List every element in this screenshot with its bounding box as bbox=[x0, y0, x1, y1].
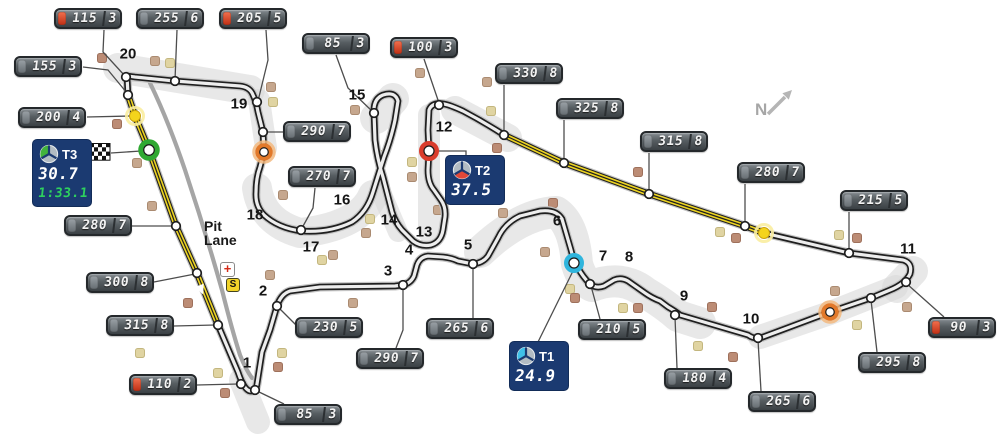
turn-number-20: 20 bbox=[120, 46, 137, 63]
gear-value: 3 bbox=[976, 320, 995, 335]
trackside-square bbox=[487, 107, 496, 116]
speed-value: 300 bbox=[97, 274, 136, 291]
trackside-square bbox=[694, 342, 703, 351]
track-node bbox=[845, 249, 854, 258]
trackside-square bbox=[835, 231, 844, 240]
gear-value: 8 bbox=[688, 134, 707, 149]
gear-value: 8 bbox=[604, 101, 623, 116]
gear-value: 7 bbox=[336, 169, 355, 184]
turn-number-10: 10 bbox=[743, 311, 760, 328]
turn-number-6: 6 bbox=[553, 213, 561, 230]
gear-value: 8 bbox=[906, 355, 925, 370]
turn-number-7: 7 bbox=[599, 248, 607, 265]
speed-gear-sign: 853 bbox=[274, 404, 342, 425]
pit-lane-label: Pit Lane bbox=[204, 219, 237, 247]
trackside-square bbox=[483, 78, 492, 87]
track-node bbox=[122, 73, 131, 82]
sector-label: T1 bbox=[539, 349, 554, 364]
track-node bbox=[193, 269, 202, 278]
track-node bbox=[671, 311, 680, 320]
speed-gear-sign: 903 bbox=[928, 317, 996, 338]
turn-number-5: 5 bbox=[464, 237, 472, 254]
speed-value: 290 bbox=[294, 123, 333, 140]
gear-value: 7 bbox=[331, 124, 350, 139]
turn-number-19: 19 bbox=[231, 96, 248, 113]
connector-line bbox=[396, 287, 403, 348]
trackside-square bbox=[184, 299, 193, 308]
turn-number-12: 12 bbox=[436, 119, 453, 136]
sector-label: T3 bbox=[62, 147, 77, 162]
speed-gear-sign: 3258 bbox=[556, 98, 624, 119]
speed-value: 325 bbox=[567, 100, 606, 117]
drs-activation-marker-2 bbox=[759, 228, 770, 239]
track-node bbox=[297, 226, 306, 235]
gear-value: 3 bbox=[322, 407, 341, 422]
gear-value: 7 bbox=[112, 218, 131, 233]
speed-value: 90 bbox=[939, 319, 978, 336]
speed-value: 180 bbox=[675, 370, 714, 387]
track-node bbox=[754, 334, 763, 343]
speed-gear-sign: 3158 bbox=[106, 315, 174, 336]
trackside-square bbox=[408, 158, 417, 167]
turn-number-2: 2 bbox=[259, 283, 267, 300]
trackside-square bbox=[716, 228, 725, 237]
track-node bbox=[251, 386, 260, 395]
speed-gear-sign: 2105 bbox=[578, 319, 646, 340]
speed-value: 230 bbox=[306, 319, 345, 336]
turn-number-8: 8 bbox=[625, 249, 633, 266]
compass-north-label: N bbox=[755, 100, 767, 120]
pit-entry-icon: S bbox=[226, 278, 240, 292]
trackside-square bbox=[113, 120, 122, 129]
sector-pie-icon bbox=[515, 345, 537, 367]
gear-value: 7 bbox=[404, 351, 423, 366]
speed-gear-sign: 2656 bbox=[748, 391, 816, 412]
gear-value: 5 bbox=[888, 193, 907, 208]
gear-value: 2 bbox=[177, 377, 196, 392]
speed-value: 100 bbox=[401, 39, 440, 56]
gear-value: 7 bbox=[785, 165, 804, 180]
trackside-square bbox=[416, 69, 425, 78]
sector-time: 30.7 bbox=[37, 165, 80, 183]
speed-gear-sign: 3158 bbox=[640, 131, 708, 152]
sector-box-t1: T1 24.9 bbox=[510, 342, 568, 390]
sector-pie-icon bbox=[38, 143, 60, 165]
speed-gear-sign: 2055 bbox=[219, 8, 287, 29]
track-node bbox=[172, 222, 181, 231]
speed-value: 155 bbox=[25, 58, 64, 75]
track-node bbox=[370, 109, 379, 118]
turn-number-16: 16 bbox=[334, 192, 351, 209]
trackside-square bbox=[634, 304, 643, 313]
trackside-square bbox=[136, 349, 145, 358]
trackside-square bbox=[571, 294, 580, 303]
speed-value: 280 bbox=[748, 164, 787, 181]
trackside-square bbox=[566, 285, 575, 294]
track-node bbox=[259, 128, 268, 137]
connector-line bbox=[424, 59, 439, 103]
trackside-square bbox=[619, 304, 628, 313]
track-node bbox=[867, 294, 876, 303]
speed-gear-sign: 2907 bbox=[283, 121, 351, 142]
turn-number-9: 9 bbox=[680, 288, 688, 305]
trackside-square bbox=[853, 321, 862, 330]
trackside-square bbox=[634, 168, 643, 177]
speed-gear-sign: 1003 bbox=[390, 37, 458, 58]
gear-value: 4 bbox=[66, 110, 85, 125]
gear-value: 8 bbox=[154, 318, 173, 333]
speed-gear-sign: 2807 bbox=[737, 162, 805, 183]
turn-number-13: 13 bbox=[416, 224, 433, 241]
track-node bbox=[435, 101, 444, 110]
trackside-square bbox=[269, 98, 278, 107]
track-node bbox=[560, 159, 569, 168]
connector-line bbox=[538, 271, 573, 342]
gear-value: 4 bbox=[712, 371, 731, 386]
trackside-square bbox=[408, 173, 417, 182]
gear-value: 8 bbox=[543, 66, 562, 81]
track-node bbox=[171, 77, 180, 86]
speed-value: 330 bbox=[506, 65, 545, 82]
track-node bbox=[253, 98, 262, 107]
trackside-square bbox=[133, 159, 142, 168]
speed-gear-sign: 1153 bbox=[54, 8, 122, 29]
speed-gear-sign: 2656 bbox=[426, 318, 494, 339]
trackside-square bbox=[708, 303, 717, 312]
speed-value: 295 bbox=[869, 354, 908, 371]
speed-value: 110 bbox=[140, 376, 179, 393]
track-node bbox=[399, 281, 408, 290]
drs-activation-marker-1 bbox=[130, 111, 141, 122]
connector-line bbox=[154, 274, 195, 282]
trackside-square bbox=[266, 271, 275, 280]
track-node bbox=[586, 280, 595, 289]
connector-line bbox=[907, 284, 944, 317]
trackside-square bbox=[549, 199, 558, 208]
turn-number-17: 17 bbox=[303, 239, 320, 256]
gear-value: 3 bbox=[102, 11, 121, 26]
speed-gear-sign: 3008 bbox=[86, 272, 154, 293]
speed-gear-sign: 2707 bbox=[288, 166, 356, 187]
sector-box-t3: T3 30.7 1:33.1 bbox=[33, 140, 91, 206]
trackside-square bbox=[499, 209, 508, 218]
trackside-square bbox=[732, 234, 741, 243]
gear-value: 5 bbox=[267, 11, 286, 26]
speed-gear-sign: 1102 bbox=[129, 374, 197, 395]
connector-line bbox=[111, 151, 141, 153]
gear-value: 5 bbox=[626, 322, 645, 337]
gear-value: 6 bbox=[796, 394, 815, 409]
connector-line bbox=[174, 325, 215, 326]
track-node bbox=[645, 190, 654, 199]
trackside-square bbox=[903, 303, 912, 312]
gear-value: 3 bbox=[438, 40, 457, 55]
north-arrow bbox=[768, 97, 785, 114]
speed-value: 265 bbox=[759, 393, 798, 410]
trackside-square bbox=[274, 363, 283, 372]
speed-gear-sign: 2958 bbox=[858, 352, 926, 373]
sector-pie-icon bbox=[451, 159, 473, 181]
trackside-square bbox=[267, 83, 276, 92]
speed-gear-sign: 2907 bbox=[356, 348, 424, 369]
track-node bbox=[500, 131, 509, 140]
trackside-square bbox=[151, 57, 160, 66]
trackside-square bbox=[831, 287, 840, 296]
finish-flag-icon bbox=[90, 143, 111, 161]
gear-value: 3 bbox=[62, 59, 81, 74]
trackside-square bbox=[493, 144, 502, 153]
trackside-square bbox=[853, 234, 862, 243]
speed-value: 315 bbox=[117, 317, 156, 334]
speed-value: 85 bbox=[313, 35, 352, 52]
speed-value: 270 bbox=[299, 168, 338, 185]
speed-gear-sign: 1804 bbox=[664, 368, 732, 389]
speed-gear-sign: 3308 bbox=[495, 63, 563, 84]
trackside-square bbox=[349, 299, 358, 308]
trackside-square bbox=[366, 215, 375, 224]
trackside-square bbox=[318, 256, 327, 265]
trackside-square bbox=[362, 229, 371, 238]
trackside-square bbox=[329, 251, 338, 260]
trackside-square bbox=[221, 389, 230, 398]
sector-box-t2: T2 37.5 bbox=[446, 156, 504, 204]
track-node bbox=[124, 91, 133, 100]
trackside-square bbox=[279, 191, 288, 200]
sector-label: T2 bbox=[475, 163, 490, 178]
gear-value: 5 bbox=[343, 320, 362, 335]
track-node bbox=[741, 222, 750, 231]
turn-number-11: 11 bbox=[900, 241, 916, 258]
speed-value: 115 bbox=[65, 10, 104, 27]
track-node bbox=[237, 380, 246, 389]
turn-number-14: 14 bbox=[381, 212, 398, 229]
speed-value: 205 bbox=[230, 10, 269, 27]
speed-value: 315 bbox=[651, 133, 690, 150]
speed-value: 210 bbox=[589, 321, 628, 338]
gear-value: 3 bbox=[350, 36, 369, 51]
gear-value: 6 bbox=[184, 11, 203, 26]
track-node bbox=[273, 302, 282, 311]
connector-line bbox=[87, 116, 130, 117]
speed-value: 280 bbox=[75, 217, 114, 234]
speed-gear-sign: 2807 bbox=[64, 215, 132, 236]
trackside-square bbox=[148, 202, 157, 211]
turn-number-18: 18 bbox=[247, 207, 264, 224]
speed-gear-sign: 2155 bbox=[840, 190, 908, 211]
trackside-square bbox=[729, 353, 738, 362]
speed-value: 255 bbox=[147, 10, 186, 27]
gear-value: 8 bbox=[134, 275, 153, 290]
sector-time: 37.5 bbox=[450, 181, 493, 199]
turn-number-3: 3 bbox=[384, 263, 392, 280]
track-node bbox=[902, 278, 911, 287]
turn-number-4: 4 bbox=[405, 242, 413, 259]
speed-value: 290 bbox=[367, 350, 406, 367]
speed-gear-sign: 2556 bbox=[136, 8, 204, 29]
speed-gear-sign: 1553 bbox=[14, 56, 82, 77]
speed-gear-sign: 853 bbox=[302, 33, 370, 54]
medical-icon: + bbox=[220, 262, 235, 277]
turn-number-15: 15 bbox=[349, 87, 366, 104]
gear-value: 6 bbox=[474, 321, 493, 336]
trackside-square bbox=[166, 59, 175, 68]
speed-gear-sign: 2305 bbox=[295, 317, 363, 338]
speed-gear-sign: 2004 bbox=[18, 107, 86, 128]
speed-value: 265 bbox=[437, 320, 476, 337]
trackside-square bbox=[278, 349, 287, 358]
track-node bbox=[214, 321, 223, 330]
circuit-map: T3 30.7 1:33.1 T2 37.5 T1 24.9 Pit Lane … bbox=[0, 0, 1007, 435]
sector-time: 24.9 bbox=[514, 367, 557, 385]
track-node bbox=[469, 260, 478, 269]
trackside-square bbox=[541, 248, 550, 257]
trackside-square bbox=[351, 106, 360, 115]
speed-value: 85 bbox=[285, 406, 324, 423]
lap-time: 1:33.1 bbox=[37, 187, 89, 201]
trackside-square bbox=[214, 369, 223, 378]
speed-value: 215 bbox=[851, 192, 890, 209]
turn-number-1: 1 bbox=[243, 355, 251, 372]
speed-value: 200 bbox=[29, 109, 68, 126]
